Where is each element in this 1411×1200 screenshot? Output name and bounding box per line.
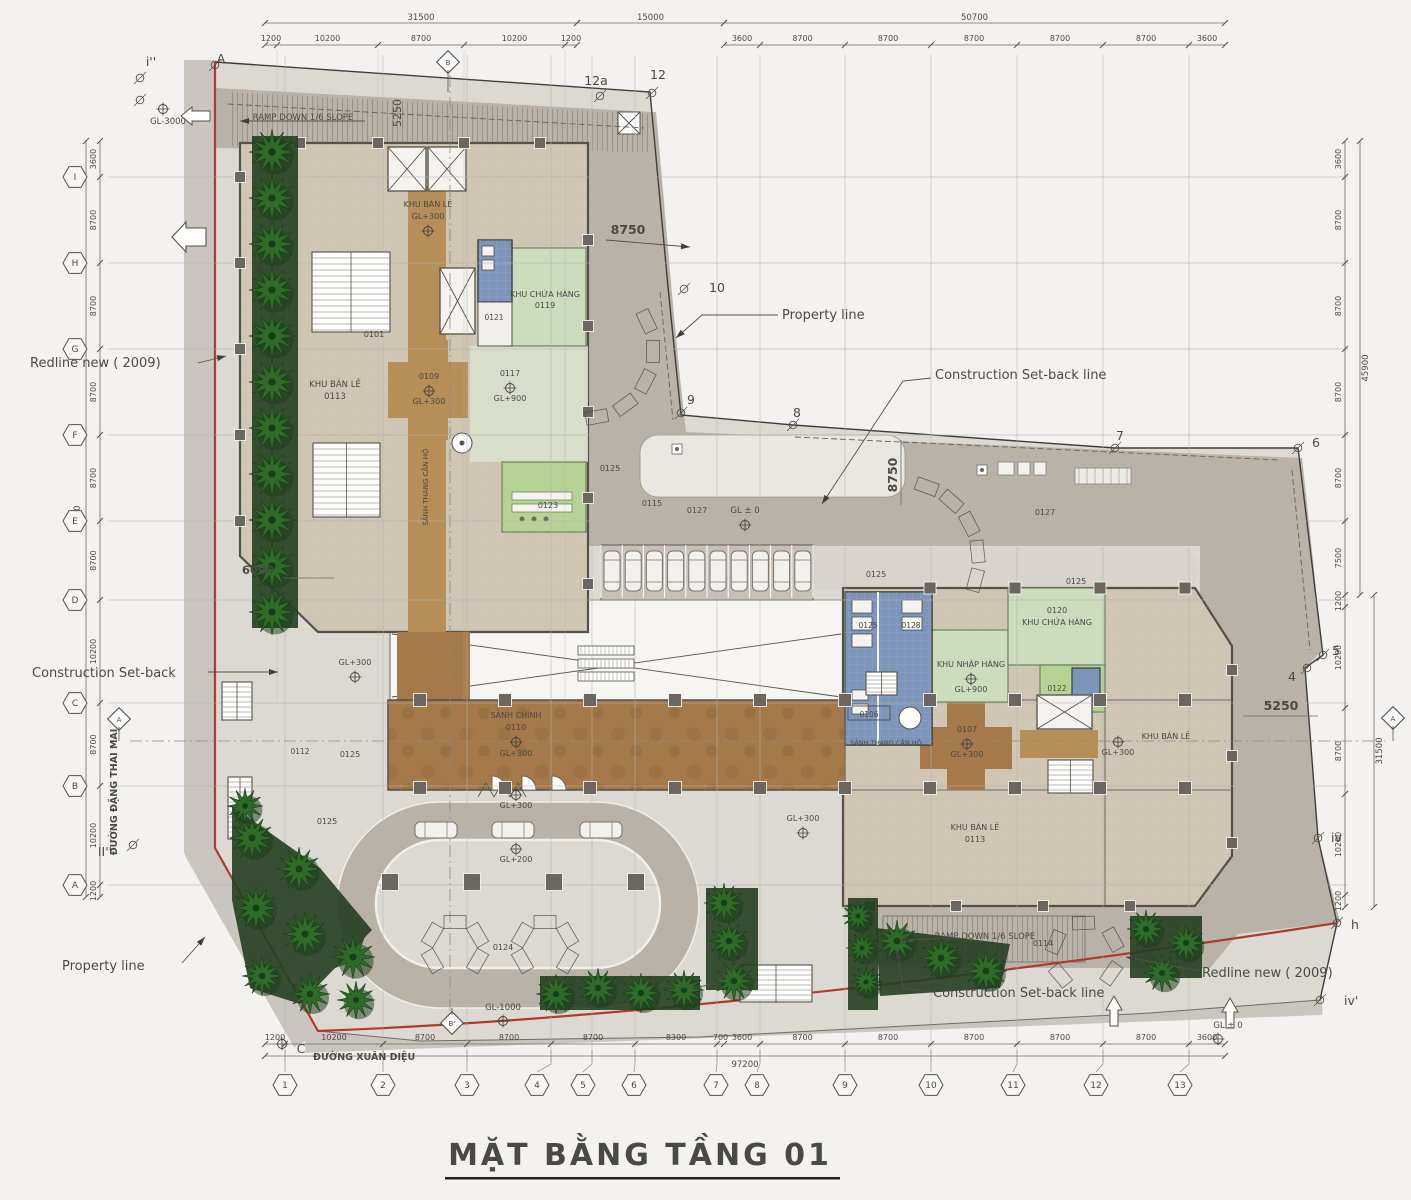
label: 0125: [340, 750, 360, 759]
column: [1125, 901, 1136, 912]
grid-bubble-label: 9: [842, 1081, 848, 1091]
label: 0127: [687, 506, 707, 515]
dim-label: 8700: [964, 1033, 984, 1042]
column: [1179, 694, 1192, 707]
grid-bubble-label: 3: [464, 1081, 470, 1091]
label: II'': [98, 844, 112, 859]
label: 0109: [419, 372, 439, 381]
dim-label: 7500: [1334, 548, 1343, 568]
dim-label: 700: [713, 1033, 728, 1042]
column: [1227, 838, 1238, 849]
label: 0125: [317, 817, 337, 826]
label: GL+900: [955, 685, 988, 694]
dim-label: 8700: [1136, 1033, 1156, 1042]
escalators: [578, 646, 634, 681]
column: [1094, 782, 1107, 795]
dim-label: 8700: [89, 468, 98, 488]
label: 0126: [273, 910, 293, 919]
label: KHU CHỨA HÀNG: [510, 288, 580, 299]
label: KHU CHỨA HÀNG: [1022, 616, 1092, 627]
column: [373, 138, 384, 149]
column: [499, 782, 512, 795]
column: [754, 782, 767, 795]
dim-label: 10200: [321, 1033, 346, 1042]
column: [1038, 901, 1049, 912]
label: 9: [687, 392, 695, 407]
column: [382, 874, 399, 891]
grid-bubble-label: G: [72, 345, 79, 355]
grid-bubble-label: 10: [925, 1081, 937, 1091]
dim-label: 1200: [561, 34, 581, 43]
label: GL-3000: [150, 117, 186, 127]
dim-label: 8700: [878, 1033, 898, 1042]
label: Construction Set-back line: [935, 368, 1106, 383]
label: 8: [793, 405, 801, 420]
label: C: [297, 1041, 306, 1056]
column: [924, 582, 936, 594]
label: 5250: [1264, 698, 1299, 713]
label: 0124: [493, 943, 513, 952]
label: GL+300: [500, 801, 533, 810]
dim-label: 8700: [89, 550, 98, 570]
grid-bubble-label: 2: [380, 1081, 386, 1091]
label: KHU BÁN LẺ: [1142, 730, 1191, 741]
dim-label: 8700: [499, 1033, 519, 1042]
label: 12: [650, 67, 666, 82]
parked-car: [604, 551, 620, 591]
dim-label: 8700: [1334, 468, 1343, 488]
label: 0125: [1066, 577, 1086, 586]
label: 0101: [364, 330, 384, 339]
column: [583, 321, 594, 332]
label: GL+200: [500, 855, 533, 864]
escalator: [578, 659, 634, 668]
label: GL+300: [413, 397, 446, 406]
dim-label: 8300: [666, 1033, 686, 1042]
dim-label: 8700: [964, 34, 984, 43]
column: [669, 694, 682, 707]
label: GL+300: [787, 814, 820, 823]
label: 0125: [600, 464, 620, 473]
label: 6000: [242, 563, 274, 577]
column: [235, 258, 246, 269]
dim-label: 1200: [89, 881, 98, 901]
label: 0125: [866, 570, 886, 579]
label: 0120: [1047, 606, 1067, 615]
label: ĐƯỜNG XUÂN DIỆU: [313, 1051, 415, 1063]
column: [235, 344, 246, 355]
label: A: [217, 51, 226, 66]
dim-label: 8700: [89, 382, 98, 402]
column: [924, 694, 937, 707]
parked-car: [625, 551, 641, 591]
column: [1094, 694, 1107, 707]
grid-bubble-label: 5: [580, 1081, 586, 1091]
label: MẶT BẰNG TẦNG 01: [448, 1133, 832, 1173]
dim-label: 8700: [89, 210, 98, 230]
label: RAMP DOWN 1/6 SLOPE: [935, 932, 1036, 942]
column: [584, 694, 597, 707]
label: GL+300: [1102, 748, 1135, 757]
dim-label: 8700: [411, 34, 431, 43]
label: GL-1000: [485, 1003, 521, 1013]
dim-label: 8700: [1334, 741, 1343, 761]
label: 8750: [611, 222, 646, 237]
grid-bubble-label: C: [72, 699, 78, 709]
label: h: [1351, 917, 1359, 932]
column: [669, 782, 682, 795]
dim-total-label: 45900: [1361, 354, 1371, 381]
dim-label: 8700: [583, 1033, 603, 1042]
dim-label: 8700: [792, 1033, 812, 1042]
dim-label: 10200: [502, 34, 527, 43]
dim-label: 8700: [89, 734, 98, 754]
column: [924, 782, 937, 795]
grid-bubble-label: 11: [1007, 1081, 1018, 1091]
label: KHU BÁN LẺ: [404, 198, 453, 209]
column: [414, 782, 427, 795]
label: 0125: [858, 621, 877, 630]
stair: [313, 443, 380, 517]
label: 12a: [584, 73, 608, 88]
label: GL+300: [339, 658, 372, 667]
label: 0128: [901, 621, 920, 630]
column: [499, 694, 512, 707]
grid-bubble-label: D: [72, 596, 79, 606]
parked-car: [492, 822, 534, 838]
label: KHU BÁN LẺ: [951, 821, 1000, 832]
label: B': [449, 1020, 456, 1028]
label: 0106: [859, 710, 878, 719]
dim-total-label: 31500: [407, 13, 434, 23]
label: SẢNH THANG CĂN HỘ: [850, 738, 922, 747]
stair: [312, 252, 390, 332]
column: [1227, 665, 1238, 676]
dim-label: 3600: [732, 1033, 752, 1042]
column: [583, 493, 594, 504]
grid-bubble-label: I: [74, 173, 77, 183]
label: 5250: [391, 99, 404, 127]
column: [1009, 782, 1022, 795]
dim-label: 8700: [1050, 1033, 1070, 1042]
court-0117-area: [470, 346, 588, 462]
dim-label: 1200: [1334, 591, 1343, 611]
label: 0110: [506, 723, 526, 732]
dim-label: 8700: [1334, 296, 1343, 316]
dim-label: 8700: [89, 296, 98, 316]
grid-bubble-label: F: [72, 431, 77, 441]
room-0121-box: [478, 302, 512, 346]
label: 0112: [290, 747, 309, 756]
label: GL+900: [494, 394, 527, 403]
column: [583, 579, 594, 590]
grid-bubble-label: 1: [282, 1081, 288, 1091]
column: [839, 694, 852, 707]
dim-label: 10200: [89, 823, 98, 848]
label: 0114: [1033, 939, 1053, 948]
label: 0121: [484, 313, 503, 322]
parked-car: [415, 822, 457, 838]
dim-label: 3600: [732, 34, 752, 43]
label: 0123: [538, 501, 558, 510]
escalator: [578, 672, 634, 681]
label: KHU NHẬP HÀNG: [937, 658, 1005, 670]
dim-total-label: 50700: [961, 13, 988, 23]
parked-car: [731, 551, 747, 591]
dim-label: 8700: [415, 1033, 435, 1042]
label: 0113: [965, 835, 985, 844]
parked-car: [710, 551, 726, 591]
parked-car: [580, 822, 622, 838]
label: A: [117, 716, 122, 724]
column: [546, 874, 563, 891]
label: 7: [1116, 428, 1124, 443]
column: [1179, 582, 1191, 594]
round-table: [899, 707, 921, 729]
column: [583, 235, 594, 246]
grid-bubble-label: 13: [1174, 1081, 1185, 1091]
column: [235, 172, 246, 183]
parked-car: [689, 551, 705, 591]
label: 8750: [885, 457, 900, 492]
column: [464, 874, 481, 891]
dim-label: 8700: [1136, 34, 1156, 43]
grid-bubble-label: E: [72, 517, 78, 527]
dim-label: 8700: [878, 34, 898, 43]
column: [1179, 782, 1192, 795]
label: 0122: [1047, 684, 1066, 693]
title-underline: [445, 1177, 840, 1180]
label: iv': [1344, 993, 1358, 1008]
parked-car: [668, 551, 684, 591]
floor-plan-drawing: 1200102008700102001200360087008700870087…: [0, 0, 1411, 1200]
dim-total-label: 31500: [1375, 737, 1385, 764]
dim-label: 1200: [1334, 891, 1343, 911]
label: GL ± 0: [1213, 1021, 1242, 1031]
column: [459, 138, 470, 149]
grid-bubble-label: 12: [1090, 1081, 1101, 1091]
label: B: [446, 59, 451, 67]
dim-label: 8700: [1050, 34, 1070, 43]
column: [535, 138, 546, 149]
label: SẢNH THANG CĂN HỘ: [421, 448, 430, 526]
grid-bubble-label: A: [72, 881, 79, 891]
loading-apron: [788, 548, 1198, 590]
grid-bubble-label: H: [72, 259, 79, 269]
dim-label: 10200: [89, 639, 98, 664]
label: GL+300: [500, 749, 533, 758]
column: [839, 782, 852, 795]
label: Redline new ( 2009): [1202, 966, 1333, 981]
dim-label: 3600: [89, 149, 98, 169]
label: Construction Set-back: [32, 666, 176, 681]
label: GL ± 0: [730, 506, 759, 516]
column: [1094, 582, 1106, 594]
label: Construction Set-back line: [933, 986, 1104, 1001]
label: RAMP DOWN 1/6 SLOPE: [253, 113, 354, 123]
scanned-floor-plan-page: 1200102008700102001200360087008700870087…: [0, 0, 1411, 1200]
label: Property line: [782, 308, 865, 323]
stair: [866, 672, 897, 695]
label: KHU BÁN LẺ: [309, 378, 361, 390]
label: i'': [146, 54, 156, 69]
label: 0117: [500, 369, 520, 378]
dim-label: 3600: [1334, 149, 1343, 169]
grid-bubble-label: 6: [631, 1081, 637, 1091]
column: [951, 901, 962, 912]
label: Redline new ( 2009): [30, 356, 161, 371]
column: [1227, 751, 1238, 762]
escalator: [578, 646, 634, 655]
label: SẢNH CHÍNH: [490, 709, 541, 720]
dim-total-label: 15000: [637, 13, 664, 23]
dim-label: 8700: [1334, 382, 1343, 402]
column: [414, 694, 427, 707]
column: [1009, 582, 1021, 594]
label: 0119: [535, 301, 555, 310]
grid-bubble-label: 7: [713, 1081, 719, 1091]
label: 0115: [642, 499, 662, 508]
grid-bubble-label: 8: [754, 1081, 760, 1091]
label: 10: [709, 280, 725, 295]
column: [1009, 694, 1022, 707]
stair: [222, 682, 252, 720]
parked-car: [795, 551, 811, 591]
column: [754, 694, 767, 707]
dim-label: 3600: [1197, 34, 1217, 43]
label: 6: [1312, 435, 1320, 450]
column: [628, 874, 645, 891]
dim-label: 8700: [792, 34, 812, 43]
label: 4: [1288, 669, 1296, 684]
label: GL+300: [951, 750, 984, 759]
dim-label: 8700: [1334, 210, 1343, 230]
grid-bubble-label: B: [72, 782, 78, 792]
column: [235, 430, 246, 441]
label: GL+300: [412, 212, 445, 221]
dim-label: 1200: [261, 34, 281, 43]
parked-car: [774, 551, 790, 591]
label: 5: [1332, 643, 1340, 658]
label: A: [1391, 715, 1396, 723]
label: 0127: [1035, 508, 1055, 517]
parked-car: [752, 551, 768, 591]
parked-car: [646, 551, 662, 591]
dim-label: 10200: [315, 34, 340, 43]
dim-total-label: 97200: [731, 1060, 758, 1070]
label: Property line: [62, 959, 145, 974]
stair: [1048, 760, 1093, 793]
grid-bubble-label: 4: [534, 1081, 540, 1091]
column: [235, 516, 246, 527]
label: 0113: [324, 392, 346, 402]
label: 0107: [957, 725, 977, 734]
column: [584, 782, 597, 795]
label: ĐƯỜNG ĐẶNG THAI MAI: [108, 729, 120, 856]
label: iv: [1331, 830, 1342, 845]
